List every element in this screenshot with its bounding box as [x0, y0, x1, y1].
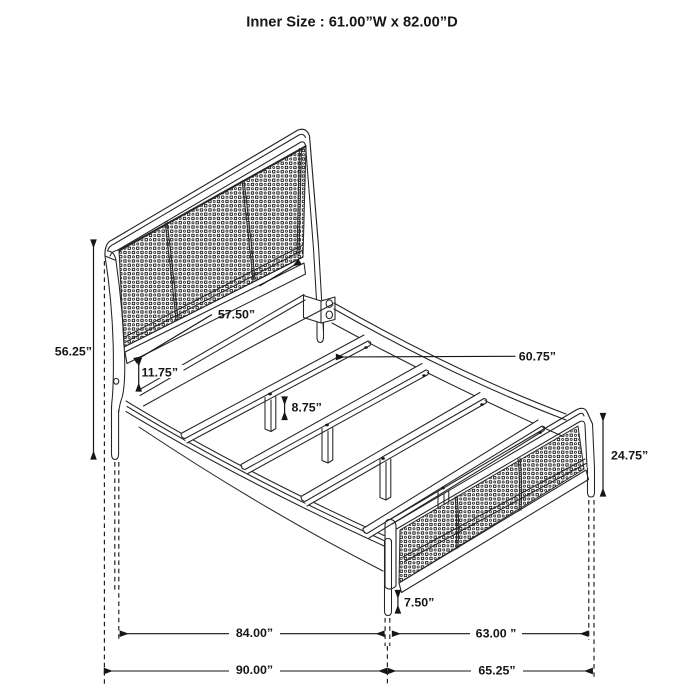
svg-text:11.75”: 11.75” [142, 366, 179, 380]
svg-text:57.50”: 57.50” [218, 308, 255, 322]
svg-text:60.75”: 60.75” [519, 350, 556, 364]
svg-text:63.00 ”: 63.00 ” [476, 626, 517, 640]
svg-text:65.25”: 65.25” [478, 664, 515, 678]
svg-text:84.00”: 84.00” [236, 626, 273, 640]
svg-text:7.50”: 7.50” [404, 596, 434, 610]
svg-text:8.75”: 8.75” [292, 401, 322, 415]
svg-text:56.25”: 56.25” [55, 345, 92, 359]
svg-text:Inner Size : 61.00”W x 82.00”D: Inner Size : 61.00”W x 82.00”D [246, 15, 457, 31]
svg-text:24.75”: 24.75” [611, 449, 648, 463]
svg-text:90.00”: 90.00” [236, 663, 273, 677]
